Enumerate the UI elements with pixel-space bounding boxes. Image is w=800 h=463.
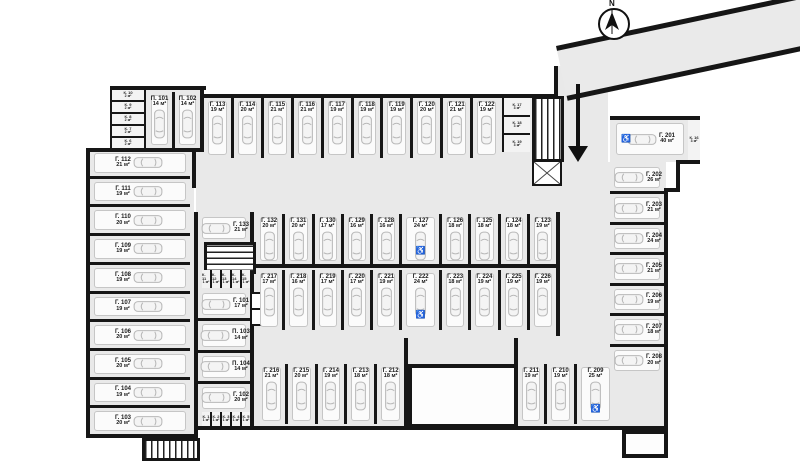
parking-stall: Г. 21119 м² <box>518 364 544 424</box>
stall-label: Г. 21318 м² <box>353 368 369 380</box>
storage-cell: К. 121 м² <box>210 270 220 288</box>
parking-stall: Г. 10620 м² <box>90 319 190 348</box>
parking-stall: Г. 10719 м² <box>90 291 190 320</box>
car-icon <box>180 109 195 139</box>
cell-area: 3 м² <box>514 125 521 129</box>
stall-area: 14 м² <box>179 102 197 108</box>
stall-label: Г. 10220 м² <box>233 392 249 404</box>
car-icon <box>614 322 644 337</box>
stall-label: Г. 20226 м² <box>646 172 662 184</box>
parking-stall: Г. 11521 м² <box>261 98 291 158</box>
stall-label: Г. 21621 м² <box>263 368 279 380</box>
parking-stall: Г. 11020 м² <box>90 204 190 233</box>
parking-stall: Г. 21621 м² <box>258 364 285 424</box>
storage-cell: К. 11 м² <box>202 412 210 426</box>
stall-area: 21 м² <box>646 208 662 214</box>
entry-arrow-shaft <box>576 84 580 146</box>
stall-area: 25 м² <box>587 374 603 380</box>
stall-label: Г. 22017 м² <box>349 274 365 286</box>
parking-stall: Г. 20619 м² <box>610 283 664 313</box>
car-icon <box>133 385 163 400</box>
cell-area: 2 м² <box>125 95 132 99</box>
stall-group-bottom-left: Г. 21621 м²Г. 21520 м²Г. 21419 м²Г. 2131… <box>258 364 404 424</box>
stall-area: 20 м² <box>115 364 131 370</box>
stall-label: Г. 12020 м² <box>419 102 435 114</box>
cell-area: 2 м² <box>125 131 132 135</box>
car-icon <box>477 287 492 317</box>
parking-stall: П. 10114 м² <box>147 92 172 148</box>
parking-stall: Г. 12518 м² <box>468 214 497 264</box>
car-icon <box>262 287 277 317</box>
car-icon <box>359 115 374 145</box>
car-icon <box>449 115 464 145</box>
car-icon <box>262 231 277 261</box>
stall-label: Г. 12219 м² <box>479 102 495 114</box>
car-icon <box>133 299 163 314</box>
car-icon <box>133 241 163 256</box>
parking-stall: Г. 11621 м² <box>291 98 321 158</box>
cell-area: 1 м² <box>223 281 230 285</box>
storage-cell: К. 173 м² <box>504 98 530 115</box>
stall-label: Г. 12916 м² <box>349 218 365 230</box>
stall-label: Г. 10520 м² <box>115 358 131 370</box>
stall-label: Г. 22224 м² <box>413 274 429 286</box>
parking-stall: Г. 22017 м² <box>341 270 370 330</box>
storage-cell: К. 141 м² <box>230 270 240 288</box>
stall-area: 18 м² <box>506 224 522 230</box>
parking-stall: Г. 10919 м² <box>90 233 190 262</box>
parking-stall: Г. 20226 м² <box>610 164 664 191</box>
stall-label: Г. 12518 м² <box>476 218 492 230</box>
stall-area: 19 м² <box>359 108 375 114</box>
stall-label: Г. 12816 м² <box>378 218 394 230</box>
car-icon <box>133 155 163 170</box>
stall-label: Г. 11819 м² <box>359 102 375 114</box>
car-icon <box>614 261 644 276</box>
elevator-x-icon <box>534 162 560 184</box>
north-label: N <box>609 0 615 8</box>
stall-label: Г. 11420 м² <box>240 102 256 114</box>
technical-room <box>408 364 518 428</box>
parking-stall: П. 10314 м² <box>198 318 250 349</box>
car-icon <box>133 414 163 429</box>
stall-group-middle-lower: Г. 21717 м²Г. 21816 м²Г. 21917 м²Г. 2201… <box>256 270 556 330</box>
car-icon <box>270 115 285 145</box>
stall-area: 21 м² <box>269 108 285 114</box>
car-icon <box>535 231 550 261</box>
wall-segment <box>196 426 616 430</box>
car-icon <box>477 231 492 261</box>
parking-stall: Г. 12020 м² <box>410 98 440 158</box>
car-icon <box>379 231 394 261</box>
stall-area: 21 м² <box>263 374 279 380</box>
wall-segment <box>250 322 254 428</box>
stall-group-middle-left-top: Г. 13321 м² <box>198 214 250 242</box>
stall-group-right-column: Г. 20226 м²Г. 20321 м²Г. 20424 м²Г. 2052… <box>610 164 664 374</box>
storage-cell: К. 62 м² <box>112 136 144 148</box>
stall-area: 18 м² <box>447 280 463 286</box>
parking-stall: Г. 20925 м²♿ <box>574 364 614 424</box>
car-icon <box>330 115 345 145</box>
car-icon <box>264 381 279 411</box>
stall-area: 20 м² <box>290 224 306 230</box>
stall-area: 14 м² <box>232 336 250 342</box>
parking-stall: Г. 10419 м² <box>90 377 190 406</box>
stall-label: Г. 11119 м² <box>115 186 130 198</box>
car-icon <box>201 390 231 405</box>
parking-stall: Г. 12121 м² <box>440 98 470 158</box>
stall-group-top-row: Г. 11319 м²Г. 11420 м²Г. 11521 м²Г. 1162… <box>204 98 500 158</box>
car-icon <box>133 213 163 228</box>
car-icon <box>294 381 309 411</box>
car-icon <box>506 231 521 261</box>
stall-label: Г. 22318 м² <box>447 274 463 286</box>
stall-area: 19 м² <box>553 374 569 380</box>
parking-stall: Г. 21218 м² <box>374 364 404 424</box>
stall-area: 18 м² <box>383 374 399 380</box>
parking-stall: Г. 10520 м² <box>90 348 190 377</box>
car-icon <box>152 109 167 139</box>
parking-stall: П. 10214 м² <box>172 92 200 148</box>
stall-area: 21 м² <box>449 108 465 114</box>
stall-area: 26 м² <box>646 178 662 184</box>
car-icon <box>614 231 644 246</box>
stall-label: Г. 21119 м² <box>523 368 539 380</box>
stall-area: 21 м² <box>233 228 249 234</box>
parking-stall: Г. 12916 м² <box>341 214 370 264</box>
cell-area: 1 м² <box>203 419 210 423</box>
car-icon <box>133 184 163 199</box>
car-icon <box>291 231 306 261</box>
cell-area: 3 м² <box>514 144 521 148</box>
parking-stall: Г. 10320 м² <box>90 405 190 434</box>
cell-area: 2 м² <box>125 107 132 111</box>
car-icon <box>614 353 644 368</box>
parking-stall: Г. 11319 м² <box>204 98 231 158</box>
cell-area: 1 м² <box>213 419 220 423</box>
stall-label: Г. 10919 м² <box>115 243 131 255</box>
stall-area: 19 м² <box>535 280 551 286</box>
parking-stall: Г. 20424 м² <box>610 222 664 252</box>
parking-stall: Г. 21917 м² <box>312 270 341 330</box>
stall-label: Г. 22419 м² <box>476 274 492 286</box>
storage-cell: К. 72 м² <box>112 124 144 136</box>
storage-cell: К. 31 м² <box>220 412 230 426</box>
stall-label: П. 10314 м² <box>232 329 250 341</box>
stall-area: 14 м² <box>232 367 250 373</box>
wall-segment <box>254 264 558 268</box>
stall-area: 19 м² <box>479 108 495 114</box>
parking-stall: Г. 21419 м² <box>315 364 345 424</box>
parking-stall: Г. 22318 м² <box>439 270 468 330</box>
parking-floor-plan: N Г. 11221 м²Г. 11119 м²Г. 11020 м²Г. 10… <box>0 0 800 463</box>
stall-label: Г. 20925 м² <box>587 368 603 380</box>
stall-label: Г. 20820 м² <box>646 354 662 366</box>
stall-label: Г. 12319 м² <box>535 218 551 230</box>
car-icon <box>300 115 315 145</box>
stall-area: 18 м² <box>353 374 369 380</box>
stall-area: 19 м² <box>115 278 131 284</box>
stall-label: Г. 22519 м² <box>506 274 522 286</box>
wheelchair-icon: ♿ <box>621 135 631 143</box>
stall-area: 40 м² <box>659 139 675 145</box>
car-icon <box>320 287 335 317</box>
stall-area: 18 м² <box>646 330 662 336</box>
car-icon <box>535 287 550 317</box>
storage-cell: К. 111 м² <box>202 270 210 288</box>
storage-cell: К. 183 м² <box>504 115 530 134</box>
stall-label: Г. 10320 м² <box>115 415 131 427</box>
stall-area: 17 м² <box>349 280 365 286</box>
parking-stall: П. 10414 м² <box>198 350 250 381</box>
stall-area: 21 м² <box>646 269 662 275</box>
cell-area: 1 м² <box>243 281 250 285</box>
car-icon <box>320 231 335 261</box>
stall-label: Г. 21717 м² <box>261 274 277 286</box>
car-icon <box>614 292 644 307</box>
staircase-bottom-left <box>142 438 200 461</box>
car-icon <box>133 356 163 371</box>
parking-stall: Г. 10220 м² <box>198 381 250 412</box>
stall-area: 20 м² <box>115 421 131 427</box>
stall-area: 24 м² <box>413 280 429 286</box>
cell-group-middle: К. 111 м²К. 121 м²К. 131 м²К. 141 м²К. 1… <box>202 270 250 288</box>
stall-area: 19 м² <box>115 249 131 255</box>
wall-segment <box>144 90 146 148</box>
storage-cell: К. 51 м² <box>240 412 250 426</box>
storage-cell: К. 92 м² <box>112 100 144 112</box>
stall-label: Г. 13321 м² <box>233 222 249 234</box>
storage-cell: К. 41 м² <box>230 412 240 426</box>
stall-area: 16 м² <box>378 224 394 230</box>
stall-area: 20 м² <box>240 108 256 114</box>
stall-label: Г. 11919 м² <box>389 102 405 114</box>
stall-label: Г. 13120 м² <box>290 218 306 230</box>
stall-label: Г. 10819 м² <box>115 272 131 284</box>
stall-area: 19 м² <box>476 280 492 286</box>
parking-stall: Г. 20718 м² <box>610 313 664 343</box>
parking-stall: Г. 12724 м²♿ <box>399 214 439 264</box>
parking-stall: Г. 12816 м² <box>370 214 399 264</box>
parking-stall: Г. 11119 м² <box>90 176 190 205</box>
stall-group-right-wide: Г. 20140 м²♿ <box>612 120 688 158</box>
car-icon <box>383 381 398 411</box>
car-icon <box>200 359 230 374</box>
stall-area: 19 м² <box>378 280 394 286</box>
stall-label: Г. 11319 м² <box>210 102 226 114</box>
parking-stall: Г. 22119 м² <box>370 270 399 330</box>
stall-label: Г. 11719 м² <box>329 102 345 114</box>
parking-stall: Г. 10819 м² <box>90 262 190 291</box>
parking-stall: Г. 20140 м²♿ <box>612 120 688 158</box>
parking-stall: Г. 22224 м²♿ <box>399 270 439 330</box>
wall-segment <box>664 188 668 430</box>
cell-group-bottom: К. 11 м²К. 21 м²К. 31 м²К. 41 м²К. 51 м² <box>202 412 250 426</box>
wheelchair-icon: ♿ <box>590 405 600 413</box>
stall-label: Г. 11621 м² <box>299 102 315 114</box>
car-icon <box>210 115 225 145</box>
cell-area: 1 м² <box>243 419 250 423</box>
stall-label: Г. 12724 м² <box>413 218 429 230</box>
parking-stall: Г. 20521 м² <box>610 252 664 282</box>
car-icon <box>201 297 231 312</box>
parking-stall: Г. 13017 м² <box>312 214 341 264</box>
cell-area: 3 м² <box>514 107 521 111</box>
wheelchair-icon: ♿ <box>416 311 426 319</box>
parking-stall: Г. 21816 м² <box>282 270 311 330</box>
stall-area: 18 м² <box>476 224 492 230</box>
stall-area: 19 м² <box>646 300 662 306</box>
stall-area: 17 м² <box>320 280 336 286</box>
car-icon <box>524 381 539 411</box>
car-icon <box>349 231 364 261</box>
parking-stall: Г. 22519 м² <box>498 270 527 330</box>
parking-stall: Г. 22419 м² <box>468 270 497 330</box>
cell-group-top-left: К. 102 м²К. 92 м²К. 82 м²К. 72 м²К. 62 м… <box>112 90 144 148</box>
stall-group-top-left: П. 10114 м²П. 10214 м² <box>147 92 200 148</box>
storage-cell: К. 163 м² <box>688 120 700 160</box>
car-icon <box>200 328 230 343</box>
stall-area: 24 м² <box>413 224 429 230</box>
cell-area: 2 м² <box>125 143 132 147</box>
parking-stall: Г. 11719 м² <box>321 98 351 158</box>
stall-area: 17 м² <box>233 304 249 310</box>
car-icon <box>133 328 163 343</box>
storage-cell: К. 131 м² <box>220 270 230 288</box>
storage-cell: К. 151 м² <box>240 270 250 288</box>
cell-group-side: К. 163 м² <box>688 120 700 160</box>
stall-area: 17 м² <box>320 224 336 230</box>
car-icon <box>240 115 255 145</box>
stall-area: 14 м² <box>151 102 169 108</box>
stall-label: Г. 13220 м² <box>261 218 277 230</box>
cell-area: 1 м² <box>233 281 240 285</box>
cell-area: 3 м² <box>691 140 698 144</box>
parking-stall: Г. 12418 м² <box>498 214 527 264</box>
stall-group-middle-upper: Г. 13220 м²Г. 13120 м²Г. 13017 м²Г. 1291… <box>256 214 556 264</box>
cell-area: 1 м² <box>223 419 230 423</box>
parking-stall: Г. 20321 м² <box>610 191 664 221</box>
stall-label: Г. 22119 м² <box>378 274 394 286</box>
parking-stall: Г. 13220 м² <box>256 214 282 264</box>
wheelchair-icon: ♿ <box>416 247 426 255</box>
stall-area: 19 м² <box>506 280 522 286</box>
parking-stall: Г. 20820 м² <box>610 344 664 374</box>
cell-area: 1 м² <box>213 281 220 285</box>
parking-stall: Г. 22619 м² <box>527 270 556 330</box>
parking-stall: Г. 13321 м² <box>198 214 250 242</box>
car-icon <box>349 287 364 317</box>
cell-area: 2 м² <box>125 119 132 123</box>
stall-label: П. 10114 м² <box>151 96 169 108</box>
car-icon <box>389 115 404 145</box>
stall-area: 20 м² <box>646 361 662 367</box>
stall-label: Г. 11020 м² <box>115 214 131 226</box>
car-icon <box>614 170 644 185</box>
stall-label: П. 10214 м² <box>179 96 197 108</box>
parking-stall: Г. 13120 м² <box>282 214 311 264</box>
stall-label: Г. 12618 м² <box>447 218 463 230</box>
cell-group-top-right: К. 173 м²К. 183 м²К. 193 м² <box>504 98 530 152</box>
stall-label: Г. 20619 м² <box>646 293 662 305</box>
stall-label: Г. 12418 м² <box>506 218 522 230</box>
stall-label: Г. 21419 м² <box>323 368 339 380</box>
stall-label: Г. 11521 м² <box>269 102 285 114</box>
stall-label: Г. 10620 м² <box>115 329 131 341</box>
stall-area: 16 м² <box>349 224 365 230</box>
stall-area: 20 м² <box>419 108 435 114</box>
stall-area: 19 м² <box>210 108 226 114</box>
stall-label: П. 10414 м² <box>232 361 250 373</box>
stall-label: Г. 21520 м² <box>293 368 309 380</box>
parking-stall: Г. 10117 м² <box>198 290 250 318</box>
parking-stall: Г. 21019 м² <box>544 364 573 424</box>
stall-label: Г. 13017 м² <box>320 218 336 230</box>
stall-area: 20 м² <box>293 374 309 380</box>
elevator <box>532 160 562 186</box>
stall-label: Г. 21816 м² <box>290 274 306 286</box>
stall-area: 19 м² <box>389 108 405 114</box>
parking-stall: Г. 11221 м² <box>90 150 190 176</box>
stall-label: Г. 20321 м² <box>646 202 662 214</box>
car-icon <box>419 115 434 145</box>
parking-stall: Г. 12319 м² <box>527 214 556 264</box>
car-icon <box>448 287 463 317</box>
stall-area: 19 м² <box>115 393 131 399</box>
parking-stall: Г. 12618 м² <box>439 214 468 264</box>
stall-label: Г. 20140 м² <box>659 133 675 145</box>
stall-label: Г. 21218 м² <box>383 368 399 380</box>
parking-stall: Г. 21717 м² <box>256 270 282 330</box>
stall-label: Г. 21019 м² <box>553 368 569 380</box>
parking-stall: Г. 11420 м² <box>231 98 261 158</box>
car-icon <box>553 381 568 411</box>
car-icon <box>201 221 231 236</box>
car-icon <box>627 132 657 147</box>
storage-cell: К. 102 м² <box>112 90 144 100</box>
wall-segment <box>192 152 196 188</box>
stall-area: 19 м² <box>523 374 539 380</box>
car-icon <box>614 201 644 216</box>
parking-stall: Г. 21520 м² <box>285 364 315 424</box>
stall-area: 20 м² <box>261 224 277 230</box>
car-icon <box>379 287 394 317</box>
stall-area: 19 м² <box>329 108 345 114</box>
parking-stall: Г. 21318 м² <box>344 364 374 424</box>
stall-label: Г. 10719 м² <box>115 300 131 312</box>
stall-label: Г. 11221 м² <box>115 157 131 169</box>
cell-area: 1 м² <box>233 419 240 423</box>
car-icon <box>323 381 338 411</box>
parking-stall: Г. 11819 м² <box>351 98 381 158</box>
entry-ramp <box>556 0 800 101</box>
car-icon <box>479 115 494 145</box>
stall-label: Г. 21917 м² <box>320 274 336 286</box>
car-icon <box>353 381 368 411</box>
bottom-annex-room <box>622 430 668 458</box>
north-compass <box>598 8 630 40</box>
entry-arrow-head-icon <box>568 146 588 162</box>
wall-segment <box>556 212 560 336</box>
stall-area: 20 м² <box>115 335 131 341</box>
car-icon <box>506 287 521 317</box>
stall-label: Г. 20718 м² <box>646 324 662 336</box>
parking-stall: Г. 12219 м² <box>470 98 500 158</box>
stall-area: 16 м² <box>290 280 306 286</box>
storage-cell: К. 21 м² <box>210 412 220 426</box>
stall-area: 21 м² <box>299 108 315 114</box>
stall-label: Г. 12121 м² <box>449 102 465 114</box>
